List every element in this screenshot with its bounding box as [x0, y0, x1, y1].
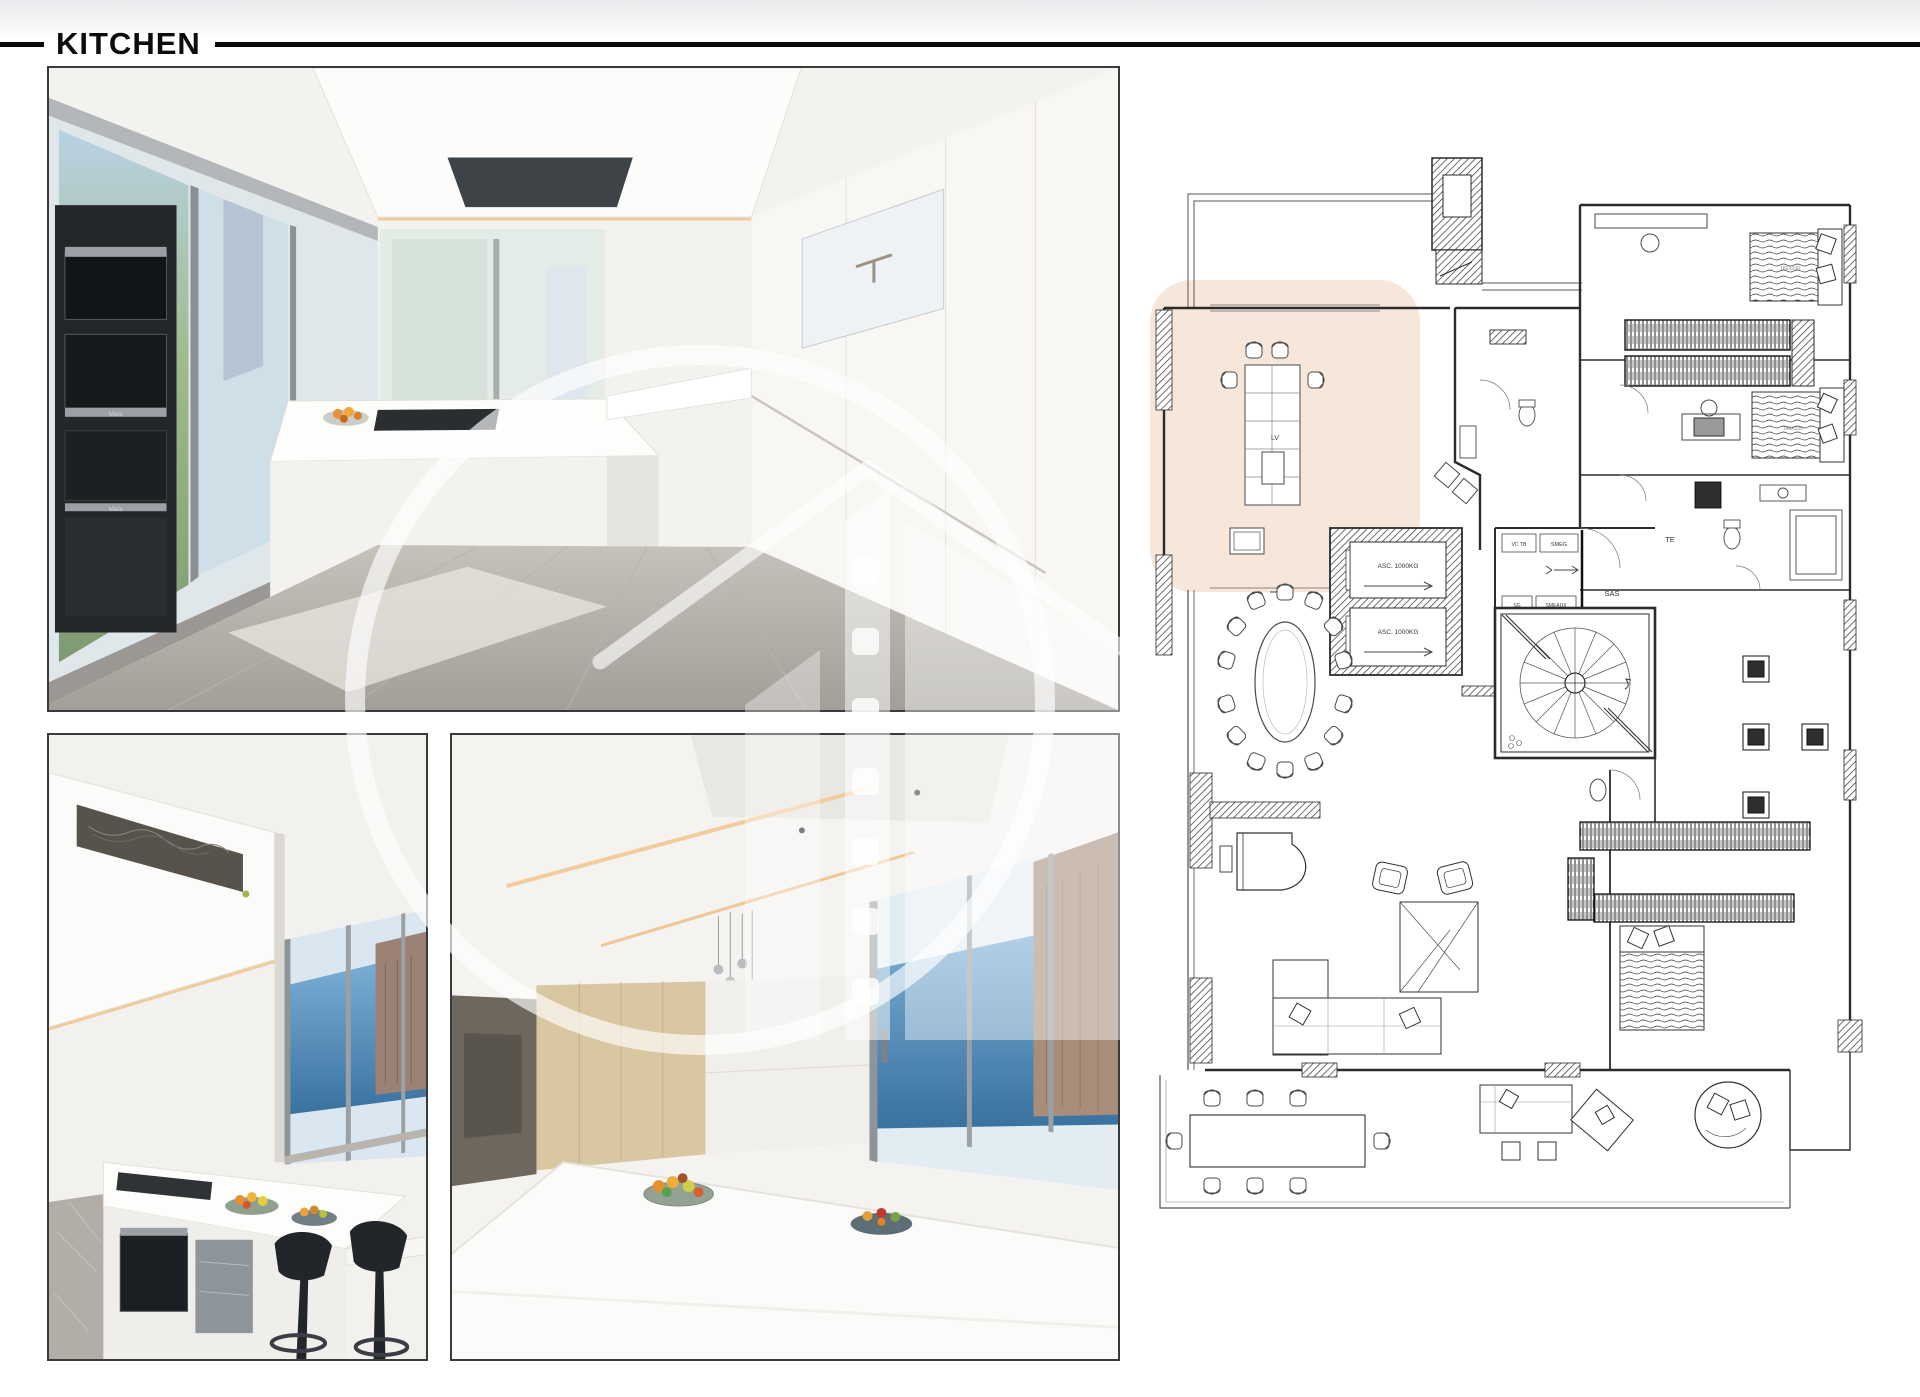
- elevators: ASC. 1000KG ASC. 1000KG: [1330, 528, 1462, 675]
- kitchen-photo-counter: [450, 733, 1120, 1361]
- floor-plan-drawing: LV ASC. 1000KG ASC. 1000KG: [1150, 130, 1870, 1215]
- round-daybed: [1695, 1082, 1761, 1148]
- smeg-label: SMEG: [1551, 542, 1567, 548]
- marble-floor: [49, 1194, 103, 1359]
- sas-label: SAS: [1604, 589, 1619, 598]
- oven-brand-label: Miele: [109, 412, 124, 418]
- bed-middle-size-label: 160X200: [1783, 426, 1803, 432]
- floor-plan: LV ASC. 1000KG ASC. 1000KG: [1150, 130, 1870, 1215]
- header: KITCHEN: [0, 26, 1920, 62]
- kitchen-photo-island-art: [49, 735, 426, 1359]
- kitchen-photo-counter-art: [452, 735, 1118, 1359]
- bed-top-size-label: 160X200: [1780, 266, 1800, 272]
- oven-column: Miele Miele: [55, 205, 177, 632]
- kitchen-photo-island: [47, 733, 428, 1361]
- duct-shaft: [1432, 158, 1482, 284]
- sea-window: [285, 910, 426, 1164]
- spiral-staircase: [1495, 608, 1655, 758]
- brochure-page: KITCHEN: [0, 0, 1920, 1397]
- vc-tb-label: VC TB: [1512, 542, 1527, 548]
- page-title: KITCHEN: [56, 26, 201, 62]
- elevator-top-label: ASC. 1000KG: [1378, 563, 1419, 570]
- title-rule-left: [0, 42, 44, 47]
- dishwasher-label: LV: [1271, 435, 1279, 442]
- elevator-bottom-label: ASC. 1000KG: [1378, 629, 1419, 636]
- oven-brand-label-2: Miele: [109, 507, 124, 513]
- te-label: TE: [1665, 535, 1675, 544]
- title-rule-right: [215, 42, 1920, 47]
- kitchen-photo-main-art: Miele Miele: [49, 68, 1118, 710]
- kitchen-photo-main: Miele Miele: [47, 66, 1120, 712]
- ceiling-box: [313, 68, 801, 219]
